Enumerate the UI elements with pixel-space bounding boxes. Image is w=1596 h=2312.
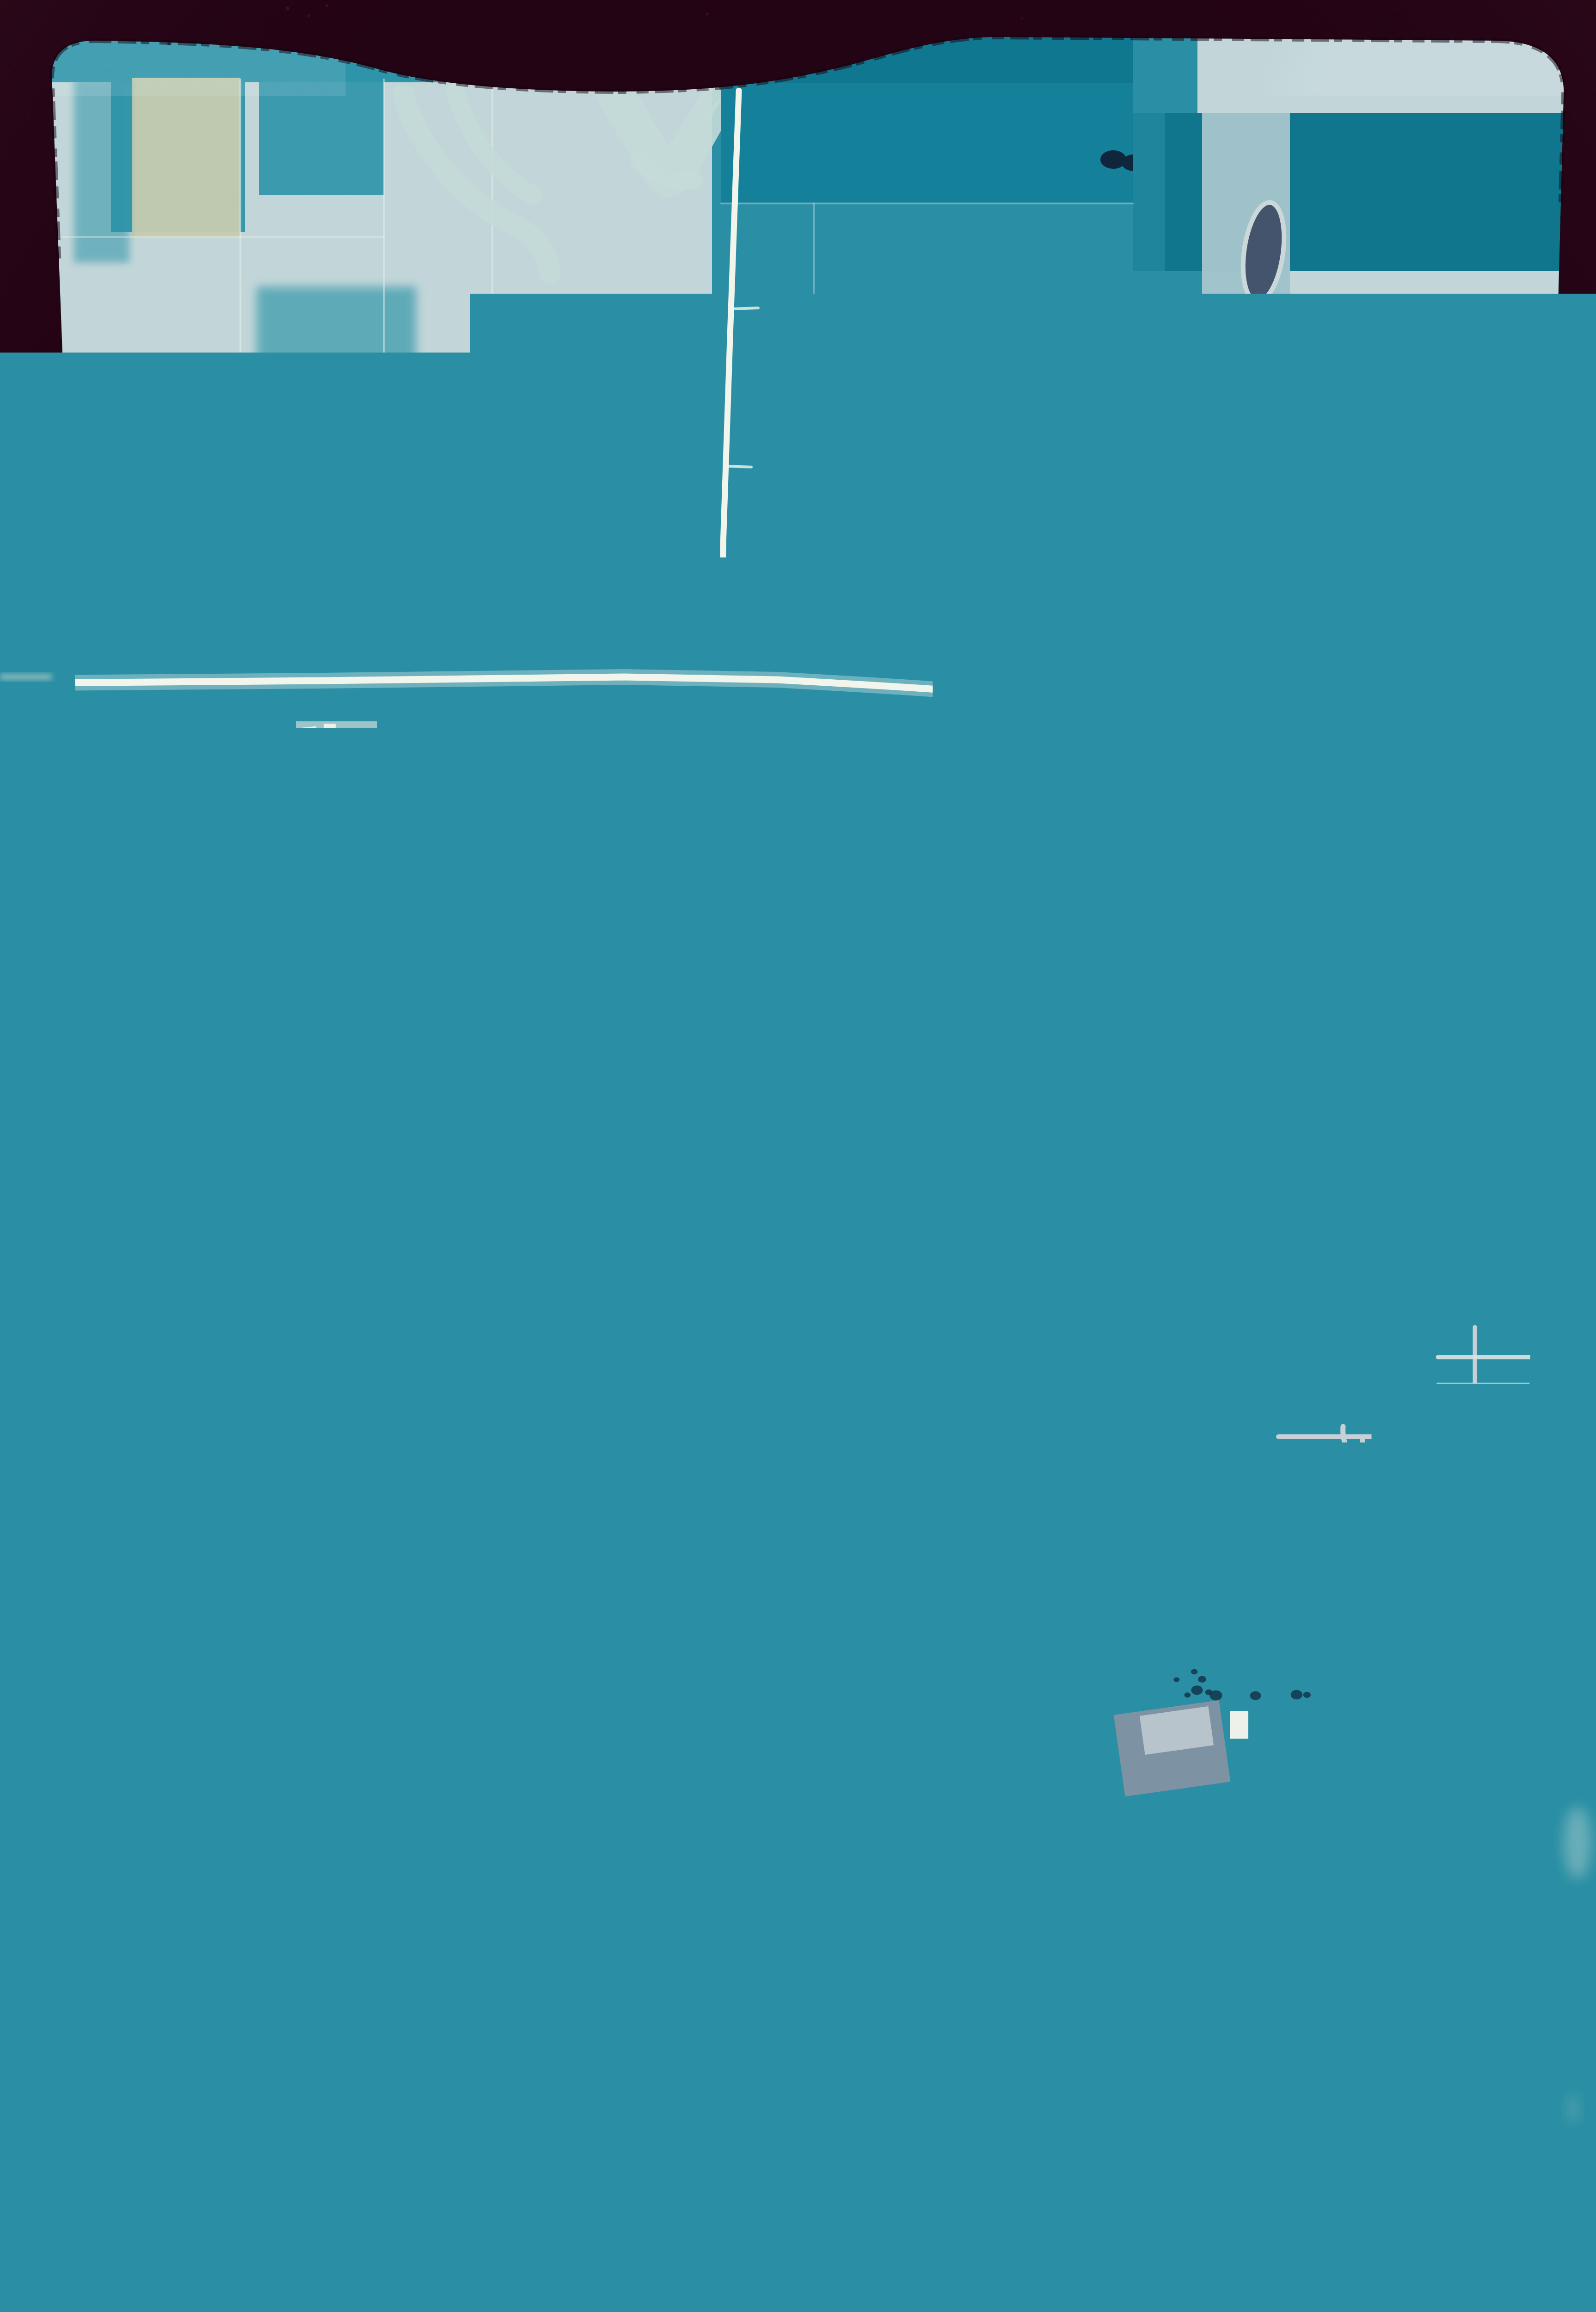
dust-speck <box>1524 401 1527 404</box>
dust-speck <box>926 1425 928 1428</box>
slide-frame <box>0 0 1596 2312</box>
dust-speck <box>98 1229 101 1231</box>
mount-speck <box>286 6 289 10</box>
dust-speck <box>1270 228 1273 230</box>
mount-speck <box>325 4 328 7</box>
dust-speck <box>1492 1629 1495 1631</box>
dust-speck <box>417 1931 420 1934</box>
dust-speck <box>1321 158 1324 161</box>
dust-speck <box>1210 417 1213 420</box>
dust-speck <box>835 1145 838 1148</box>
dust-speck <box>1395 311 1398 314</box>
grain <box>42 25 1572 2296</box>
dust-speck <box>407 1626 411 1629</box>
dust-speck <box>251 956 253 959</box>
light-leak-glow <box>1566 2094 1579 2123</box>
dust-speck <box>660 1330 663 1333</box>
dust-speck <box>193 1534 196 1537</box>
dust-speck <box>766 1210 769 1213</box>
dust-speck <box>965 350 968 353</box>
mount-speck <box>307 14 310 17</box>
dust-speck <box>861 154 864 156</box>
dust-speck <box>1034 1259 1037 1261</box>
light-leak-glow <box>1564 1807 1591 1879</box>
light-leak-streak <box>0 674 52 680</box>
layer-atmosphere <box>0 0 1596 2312</box>
aerial-photo-svg <box>0 0 1596 2312</box>
dust-speck <box>901 295 902 297</box>
dust-speck <box>454 847 457 850</box>
dust-speck <box>507 248 510 251</box>
dust-speck <box>382 1210 385 1213</box>
dust-speck <box>890 215 894 219</box>
photo-layer <box>0 0 1596 2312</box>
dust-speck <box>1224 2126 1227 2128</box>
dust-speck <box>294 997 298 1001</box>
dust-speck <box>787 886 790 889</box>
dust-speck <box>1057 544 1060 547</box>
dust-speck <box>258 295 260 297</box>
dust-speck <box>1423 1862 1425 1865</box>
dust-speck <box>1538 618 1541 621</box>
dust-speck <box>1148 942 1150 945</box>
dust-speck <box>1145 1622 1148 1624</box>
dust-speck <box>583 1423 586 1426</box>
dust-speck <box>937 2005 940 2008</box>
dust-speck <box>350 1402 353 1405</box>
mount-speck <box>706 12 709 15</box>
dust-speck <box>731 2061 734 2064</box>
dust-speck <box>569 1882 573 1886</box>
dust-speck <box>875 239 878 242</box>
mount-speck <box>1021 18 1023 19</box>
dust-speck <box>1450 886 1453 889</box>
dust-speck <box>320 2066 323 2068</box>
